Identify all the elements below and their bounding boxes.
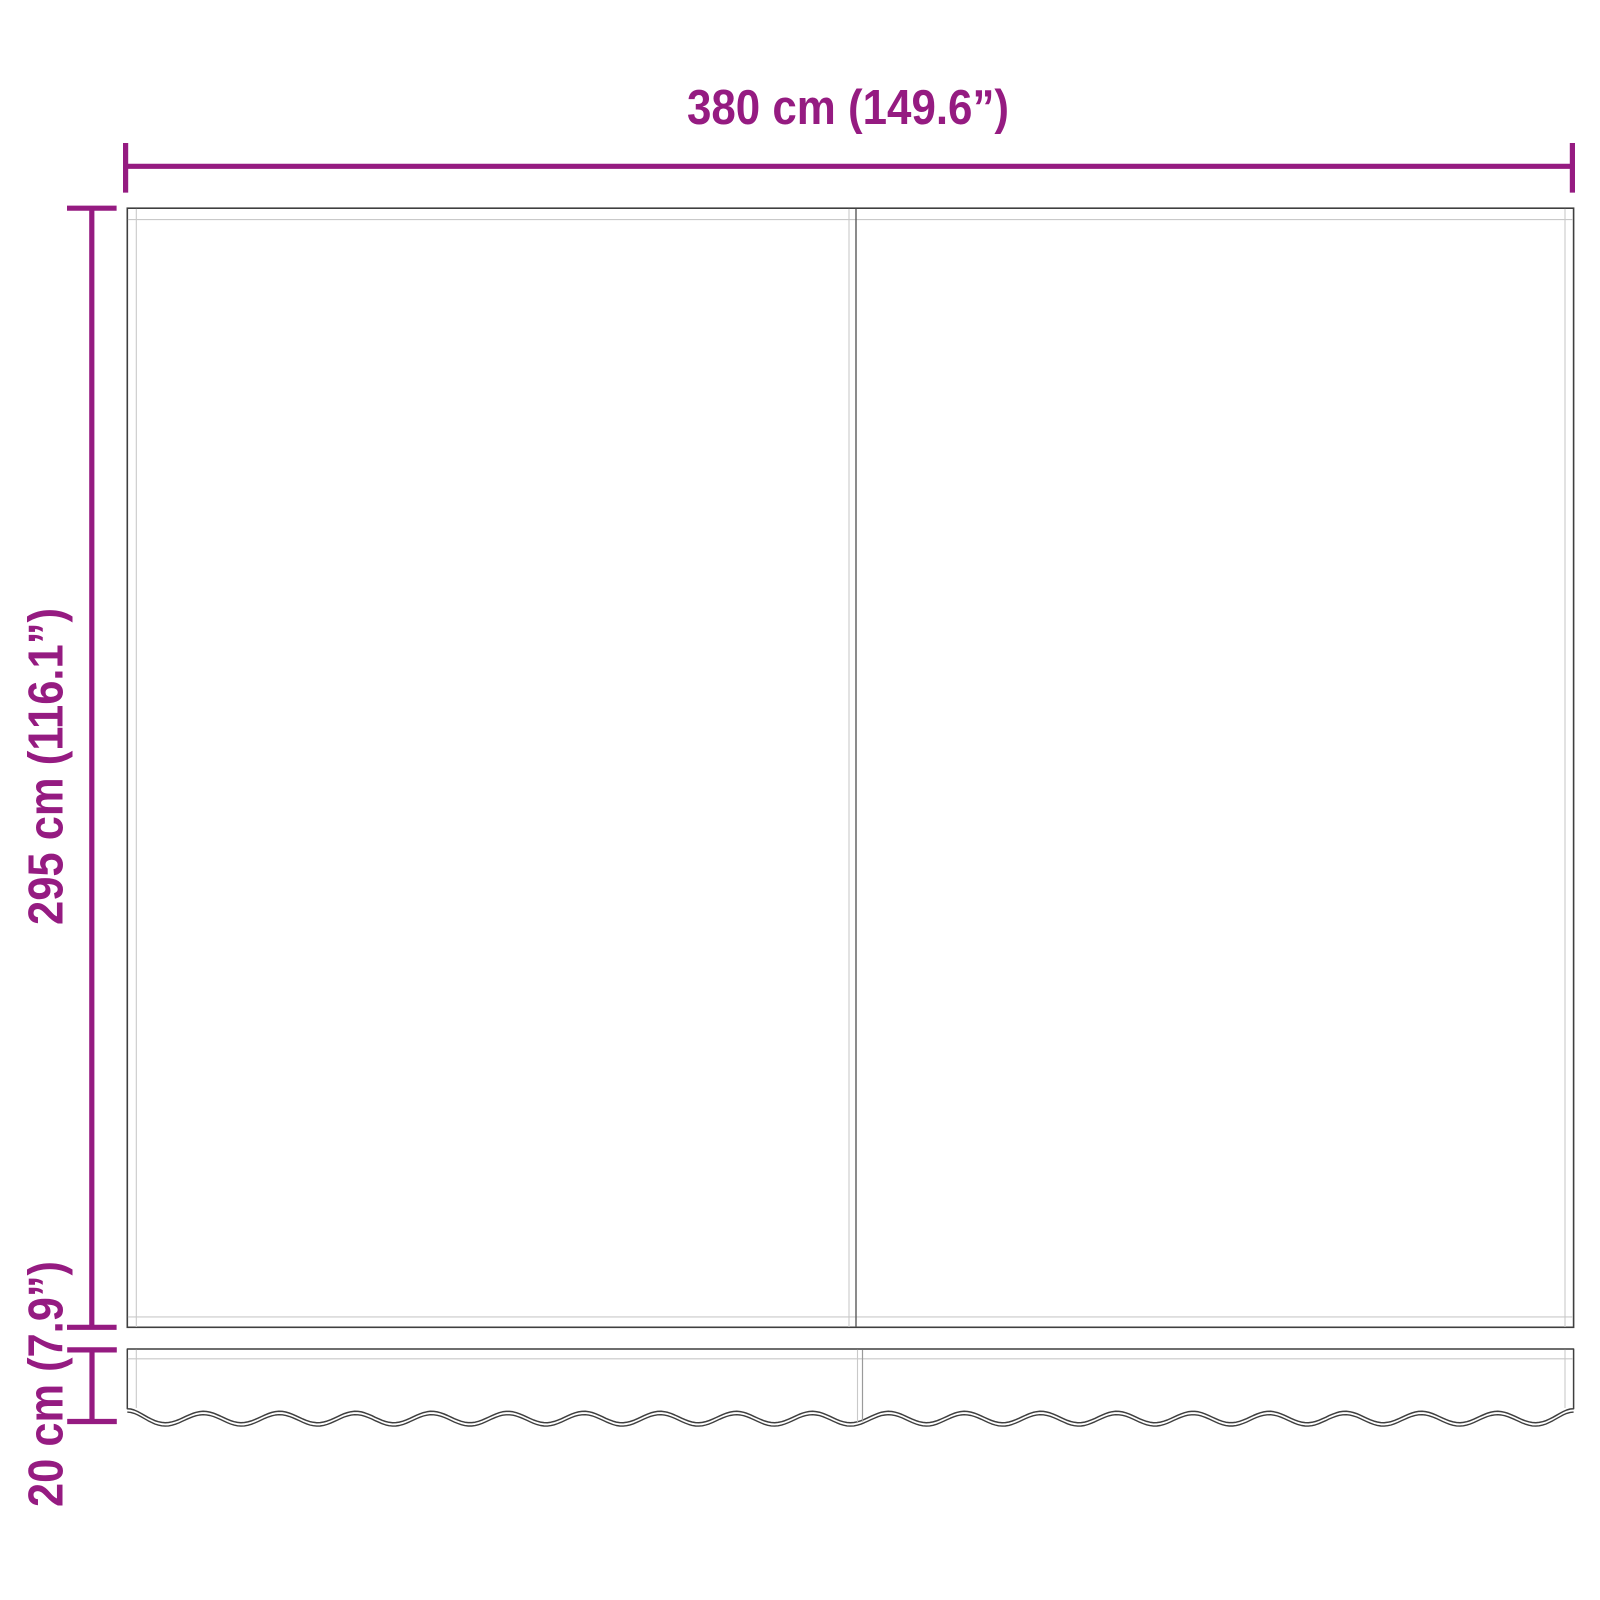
svg-text:380 cm (149.6”): 380 cm (149.6”) xyxy=(687,81,1009,135)
svg-text:295 cm (116.1”): 295 cm (116.1”) xyxy=(20,608,74,925)
svg-text:20 cm (7.9”): 20 cm (7.9”) xyxy=(20,1261,74,1507)
